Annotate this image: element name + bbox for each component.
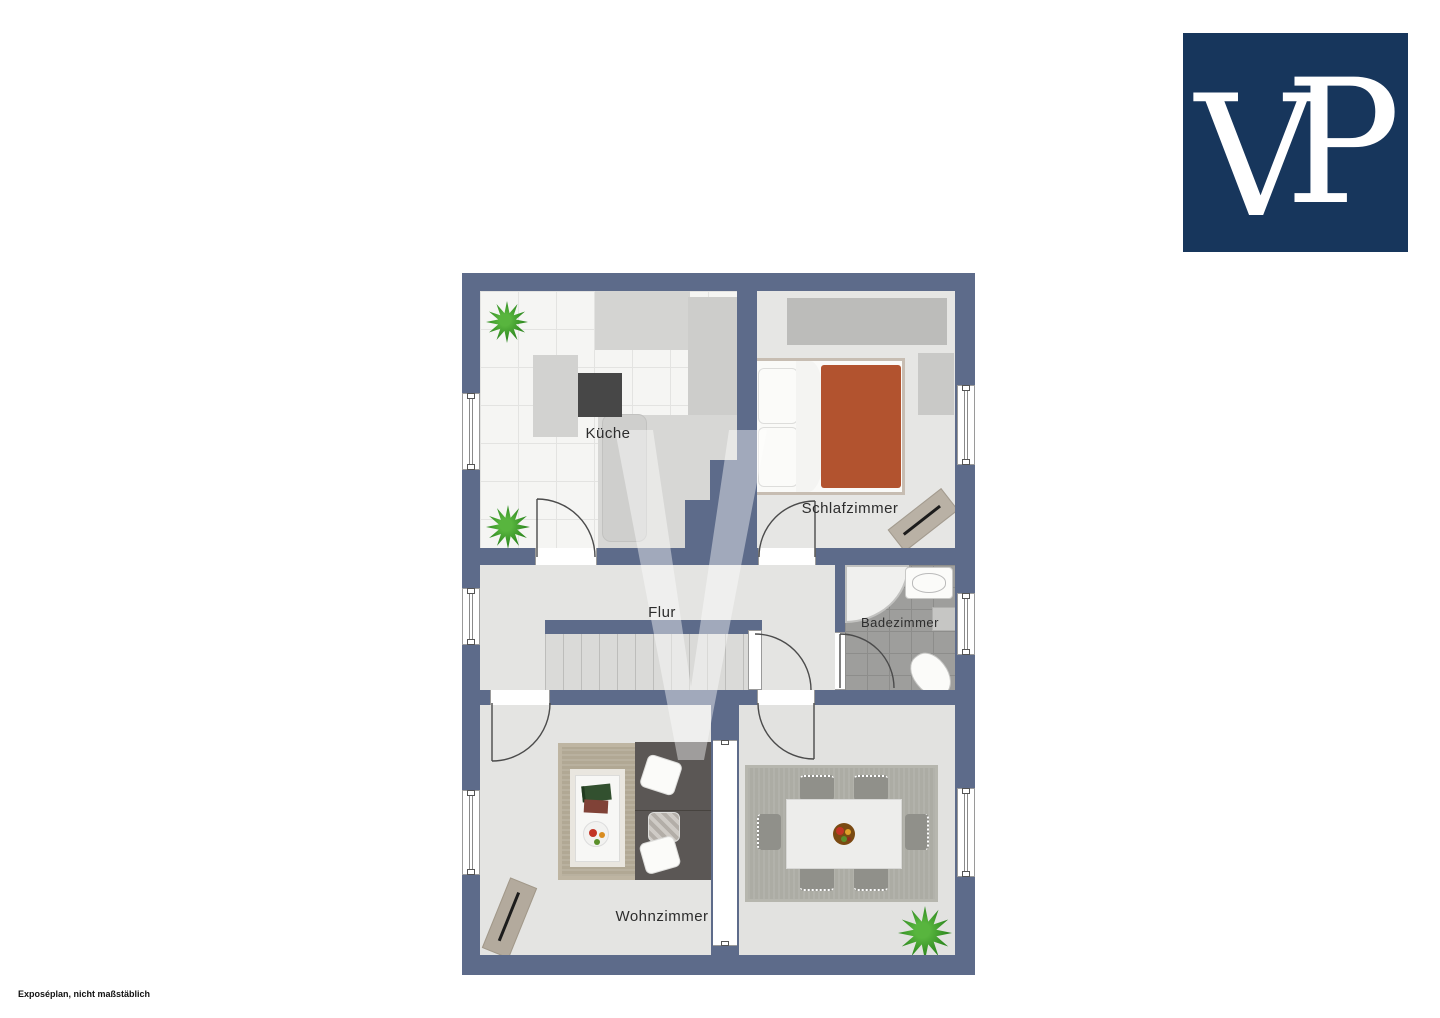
fruit-icon (589, 829, 597, 837)
sofa-pillow (639, 753, 684, 796)
dining-chair (905, 814, 929, 850)
sideboard-slot (498, 892, 520, 941)
stairs-wall (545, 620, 762, 634)
wall-top (462, 273, 975, 291)
fruit-plate (583, 821, 609, 847)
double-bed (753, 358, 905, 495)
fruit-icon (836, 827, 844, 835)
page: Küche Schlafzimmer Flur Badezimmer Wohnz… (0, 0, 1440, 1018)
vp-logo: V P (1183, 33, 1408, 252)
sink-basin (912, 573, 946, 593)
door-dining (757, 690, 815, 705)
wall-stair-step-b (685, 500, 710, 548)
footer-note: Exposéplan, nicht maßstäblich (18, 989, 150, 999)
stairs (545, 634, 762, 691)
kitchen-counter-top (595, 291, 690, 350)
floor-plan: Küche Schlafzimmer Flur Badezimmer Wohnz… (462, 273, 975, 975)
stairs-door (748, 630, 762, 690)
logo-letter-p: P (1285, 57, 1401, 229)
sink (905, 567, 953, 599)
window-living (462, 790, 480, 875)
wardrobe (787, 298, 947, 345)
door-kitchen (535, 548, 597, 565)
bed-pillow (758, 427, 798, 487)
kitchen-counter-side (688, 297, 737, 415)
bed-blanket (821, 365, 901, 488)
bed-sheet (796, 361, 824, 492)
window-dining (957, 788, 975, 877)
fruit-bowl (833, 823, 855, 845)
book (584, 799, 609, 813)
wall-kitchen-bedroom (737, 291, 757, 565)
coffee-table (575, 775, 620, 862)
window-kitchen (462, 393, 480, 470)
window-hall (462, 588, 480, 645)
wall-bottom (462, 955, 975, 975)
room-label-flur: Flur (612, 604, 712, 621)
jamb-post (721, 941, 729, 946)
wall-stair-step-a (710, 460, 737, 548)
sofa (635, 742, 713, 880)
dresser (918, 353, 954, 415)
room-label-badezimmer: Badezimmer (840, 615, 960, 630)
stove (578, 373, 622, 417)
door-bath (835, 632, 845, 690)
sofa-seam (635, 810, 713, 811)
room-label-kueche: Küche (558, 425, 658, 442)
bed-pillow (758, 368, 798, 424)
dining-chair (800, 775, 834, 801)
door-bedroom (758, 548, 816, 565)
room-label-schlafzimmer: Schlafzimmer (770, 500, 930, 517)
door-living (490, 690, 550, 705)
dining-chair (757, 814, 781, 850)
dining-chair (854, 775, 888, 801)
jamb-post (721, 740, 729, 745)
room-label-wohnzimmer: Wohnzimmer (582, 908, 742, 925)
window-bedroom (957, 385, 975, 465)
dining-table (786, 799, 902, 869)
